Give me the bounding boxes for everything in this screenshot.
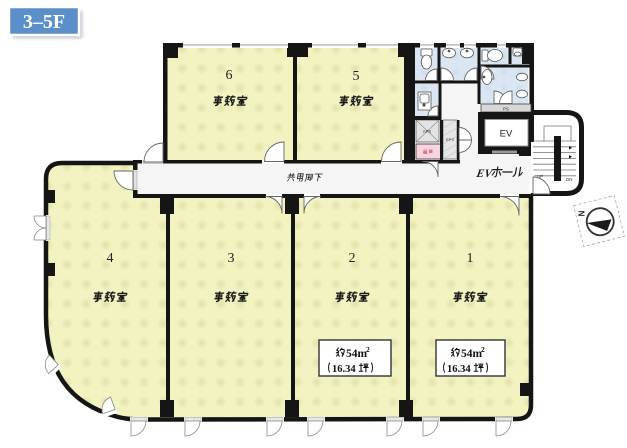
svg-text:6: 6: [226, 68, 233, 83]
svg-text:54m: 54m: [346, 348, 368, 360]
svg-text:EV: EV: [500, 129, 513, 140]
svg-text:1: 1: [467, 251, 474, 266]
svg-text:16.34: 16.34: [332, 364, 356, 375]
svg-text:5: 5: [353, 69, 360, 84]
svg-text:16.34: 16.34: [447, 364, 471, 375]
svg-text:DN: DN: [566, 177, 573, 182]
svg-text:N: N: [577, 210, 586, 216]
svg-text:EPS: EPS: [446, 137, 454, 142]
svg-text:3: 3: [228, 251, 235, 266]
svg-text:2: 2: [481, 345, 485, 354]
svg-text:2: 2: [366, 345, 370, 354]
svg-text:54m: 54m: [461, 348, 483, 360]
svg-text:4: 4: [107, 251, 114, 266]
svg-text:3–5F: 3–5F: [23, 11, 65, 33]
svg-text:APS: APS: [423, 129, 432, 134]
svg-text:PS: PS: [503, 107, 509, 112]
svg-text:2: 2: [349, 251, 356, 266]
